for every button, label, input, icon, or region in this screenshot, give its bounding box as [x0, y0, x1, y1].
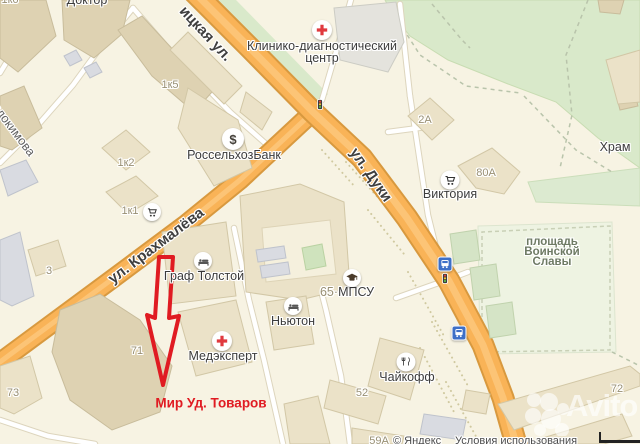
poi-label-medexpert[interactable]: Медэксперт [188, 349, 257, 363]
graduation-cap-icon[interactable] [343, 269, 361, 287]
poi-label-chaikoff[interactable]: Чайкофф [379, 370, 434, 384]
building [598, 0, 624, 14]
building-number: 1к1 [121, 205, 138, 217]
building-number: 73 [7, 387, 19, 399]
shopping-cart-icon[interactable] [441, 171, 460, 190]
shopping-cart-icon[interactable] [143, 203, 161, 221]
building-number: 1к6 [1, 0, 18, 6]
poi-label-bank[interactable]: РоссельхозБанк [187, 148, 281, 162]
medical-cross-icon[interactable] [312, 20, 332, 40]
poi-label-hram[interactable]: Храм [600, 140, 631, 154]
marker-label: Мир Уд. Товаров [155, 396, 266, 411]
mpsu-number: 65· [320, 285, 338, 299]
bus-stop-icon[interactable] [452, 326, 467, 341]
square-label: площадь Воинской Славы [524, 237, 579, 267]
building-number: 1к5 [161, 79, 178, 91]
bank-dollar-icon[interactable]: $ [222, 128, 244, 150]
building-number: 52 [356, 387, 368, 399]
scale-bar [599, 432, 640, 443]
map-geometry [0, 0, 640, 444]
building-number: 1к2 [117, 157, 134, 169]
poi-label-doktor[interactable]: Доктор [67, 0, 108, 7]
building-number: 2А [418, 114, 431, 126]
hotel-bed-icon[interactable] [194, 252, 212, 270]
restaurant-icon[interactable] [397, 353, 416, 372]
map-canvas[interactable]: ицкая ул. ул. Дуки ул. Крахмалёва вдоким… [0, 0, 640, 444]
traffic-light-icon [317, 99, 324, 117]
poi-label-graf-tolstoy[interactable]: Граф Толстой [164, 269, 244, 283]
hotel-bed-icon[interactable] [284, 297, 302, 315]
building-number: 3 [46, 265, 52, 277]
traffic-light-icon [442, 273, 449, 291]
poi-label-newton[interactable]: Ньютон [271, 314, 315, 328]
building [462, 390, 490, 414]
poi-label-clinic[interactable]: Клинико-диагностический центр [247, 40, 397, 64]
courtyard-green [302, 244, 326, 270]
medical-cross-icon[interactable] [212, 331, 232, 351]
poi-label-mpsu[interactable]: 65·МПСУ [320, 285, 374, 299]
bus-stop-icon[interactable] [438, 257, 453, 272]
building-number: 71 [131, 345, 143, 357]
building-number: 80А [476, 167, 496, 179]
building-number: 72 [611, 383, 623, 395]
map-copyright: © Яндекс [393, 435, 441, 444]
building-number: 59А [369, 435, 389, 444]
terms-link[interactable]: Условия использования [455, 435, 577, 444]
